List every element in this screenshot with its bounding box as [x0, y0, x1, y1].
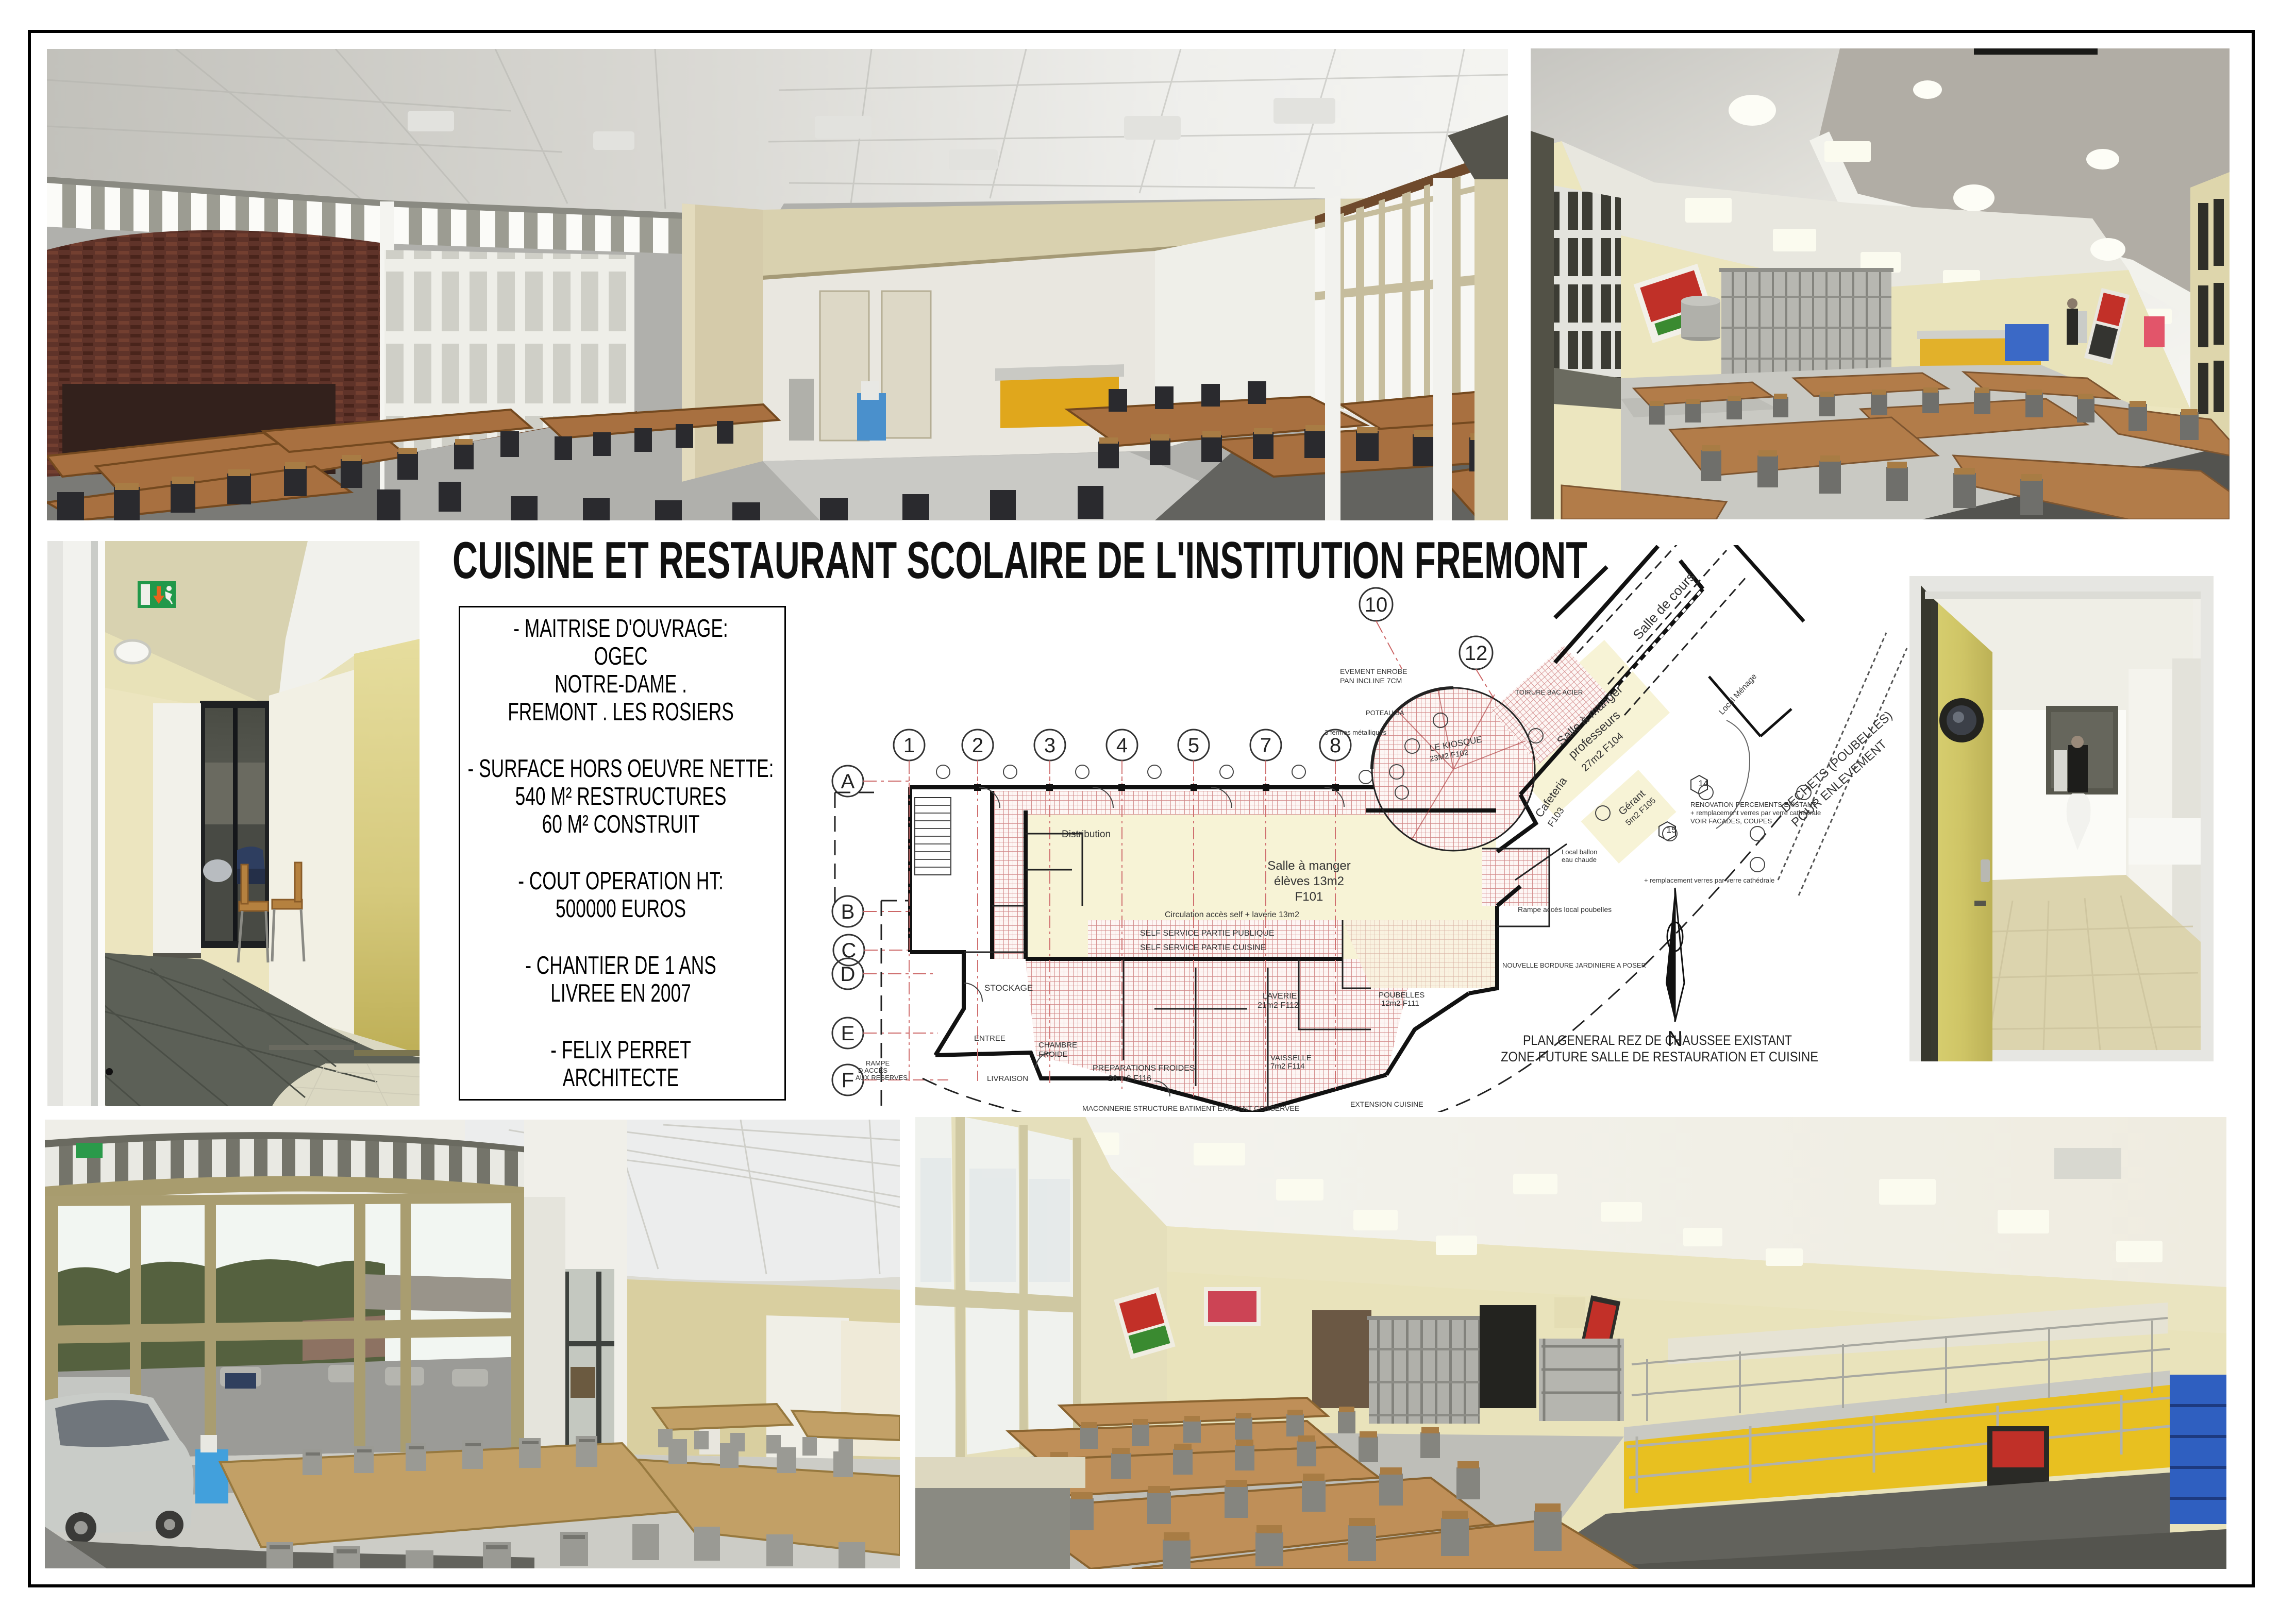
- svg-text:Local ballon: Local ballon: [1562, 848, 1597, 856]
- svg-text:4: 4: [1116, 734, 1128, 757]
- svg-text:PAN INCLINE 7CM: PAN INCLINE 7CM: [1340, 677, 1402, 685]
- svg-text:VAISSELLE: VAISSELLE: [1270, 1054, 1312, 1062]
- svg-text:E: E: [841, 1022, 855, 1045]
- svg-text:+ remplacement verres par verr: + remplacement verres par verre cathédra…: [1644, 876, 1774, 884]
- svg-text:EVEMENT ENROBE: EVEMENT ENROBE: [1340, 667, 1407, 675]
- svg-text:3 fermes métalliques: 3 fermes métalliques: [1325, 729, 1386, 736]
- svg-text:SELF SERVICE PARTIE PUBLIQUE: SELF SERVICE PARTIE PUBLIQUE: [1140, 929, 1275, 938]
- svg-text:7m2 F114: 7m2 F114: [1270, 1062, 1304, 1071]
- svg-text:PLAN GENERAL REZ DE CHAUSSEE E: PLAN GENERAL REZ DE CHAUSSEE EXISTANT: [1523, 1033, 1792, 1048]
- svg-text:F101: F101: [1295, 890, 1323, 904]
- svg-text:SELF SERVICE PARTIE CUISINE: SELF SERVICE PARTIE CUISINE: [1140, 943, 1266, 952]
- svg-text:+ remplacement verres par verr: + remplacement verres par verre cathédra…: [1690, 809, 1821, 817]
- svg-text:EXTENSION CUISINE: EXTENSION CUISINE: [1350, 1100, 1423, 1108]
- svg-text:12: 12: [1465, 642, 1488, 665]
- svg-text:ZONE FUTURE SALLE DE RESTAURAT: ZONE FUTURE SALLE DE RESTAURATION ET CUI…: [1501, 1049, 1818, 1064]
- svg-text:B: B: [841, 901, 855, 923]
- svg-text:8: 8: [1330, 734, 1341, 757]
- svg-text:eau chaude: eau chaude: [1562, 856, 1597, 864]
- svg-text:Rampe accès local poubelles: Rampe accès local poubelles: [1518, 905, 1612, 914]
- svg-text:F: F: [842, 1069, 854, 1092]
- svg-text:D ACCES: D ACCES: [858, 1067, 887, 1074]
- svg-text:10: 10: [1365, 594, 1388, 616]
- svg-text:D: D: [841, 963, 856, 986]
- svg-text:NOUVELLE BORDURE JARDINIERE A: NOUVELLE BORDURE JARDINIERE A POSER: [1502, 961, 1646, 969]
- svg-text:VOIR FACADES, COUPES: VOIR FACADES, COUPES: [1690, 817, 1772, 825]
- svg-text:C: C: [842, 939, 857, 962]
- svg-text:MACONNERIE STRUCTURE BATIMENT: MACONNERIE STRUCTURE BATIMENT EXISTANT C…: [1082, 1104, 1299, 1112]
- svg-text:21m2 F112: 21m2 F112: [1258, 1001, 1299, 1010]
- svg-text:TOIRURE BAC ACIER: TOIRURE BAC ACIER: [1515, 688, 1583, 696]
- svg-text:POUBELLES: POUBELLES: [1379, 991, 1424, 1000]
- svg-text:Circulation accès self + laver: Circulation accès self + laverie 13m2: [1165, 910, 1299, 919]
- svg-text:élèves 13m2: élèves 13m2: [1274, 874, 1344, 888]
- svg-text:CHAMBRE: CHAMBRE: [1038, 1041, 1077, 1050]
- svg-text:Distribution: Distribution: [1062, 829, 1111, 840]
- svg-text:1: 1: [903, 734, 915, 757]
- svg-text:AUX RESERVES: AUX RESERVES: [856, 1074, 908, 1081]
- svg-text:Salle à manger: Salle à manger: [1267, 859, 1350, 873]
- svg-text:5: 5: [1188, 734, 1199, 757]
- svg-text:LAVERIE: LAVERIE: [1263, 992, 1297, 1001]
- svg-text:PREPARATIONS FROIDES: PREPARATIONS FROIDES: [1093, 1064, 1195, 1073]
- svg-text:STOCKAGE: STOCKAGE: [984, 983, 1033, 993]
- svg-text:A: A: [841, 770, 855, 793]
- svg-text:RAMPE: RAMPE: [866, 1059, 890, 1067]
- svg-text:POTEAU BA: POTEAU BA: [1366, 709, 1404, 717]
- svg-text:14: 14: [1699, 779, 1708, 788]
- svg-text:ENTREE: ENTREE: [974, 1034, 1005, 1043]
- svg-text:7: 7: [1260, 734, 1271, 757]
- svg-text:RENOVATION PERCEMENTS EXISTANT: RENOVATION PERCEMENTS EXISTANT: [1690, 801, 1816, 808]
- svg-text:LIVRAISON: LIVRAISON: [987, 1074, 1028, 1083]
- svg-text:DECHETS (POUBELLES): DECHETS (POUBELLES): [1779, 708, 1895, 815]
- svg-text:3: 3: [1044, 734, 1055, 757]
- svg-text:26 m2 F116: 26 m2 F116: [1108, 1074, 1151, 1083]
- svg-text:FROIDE: FROIDE: [1038, 1050, 1068, 1059]
- svg-text:2: 2: [972, 734, 983, 757]
- svg-text:12m2 F111: 12m2 F111: [1381, 999, 1419, 1008]
